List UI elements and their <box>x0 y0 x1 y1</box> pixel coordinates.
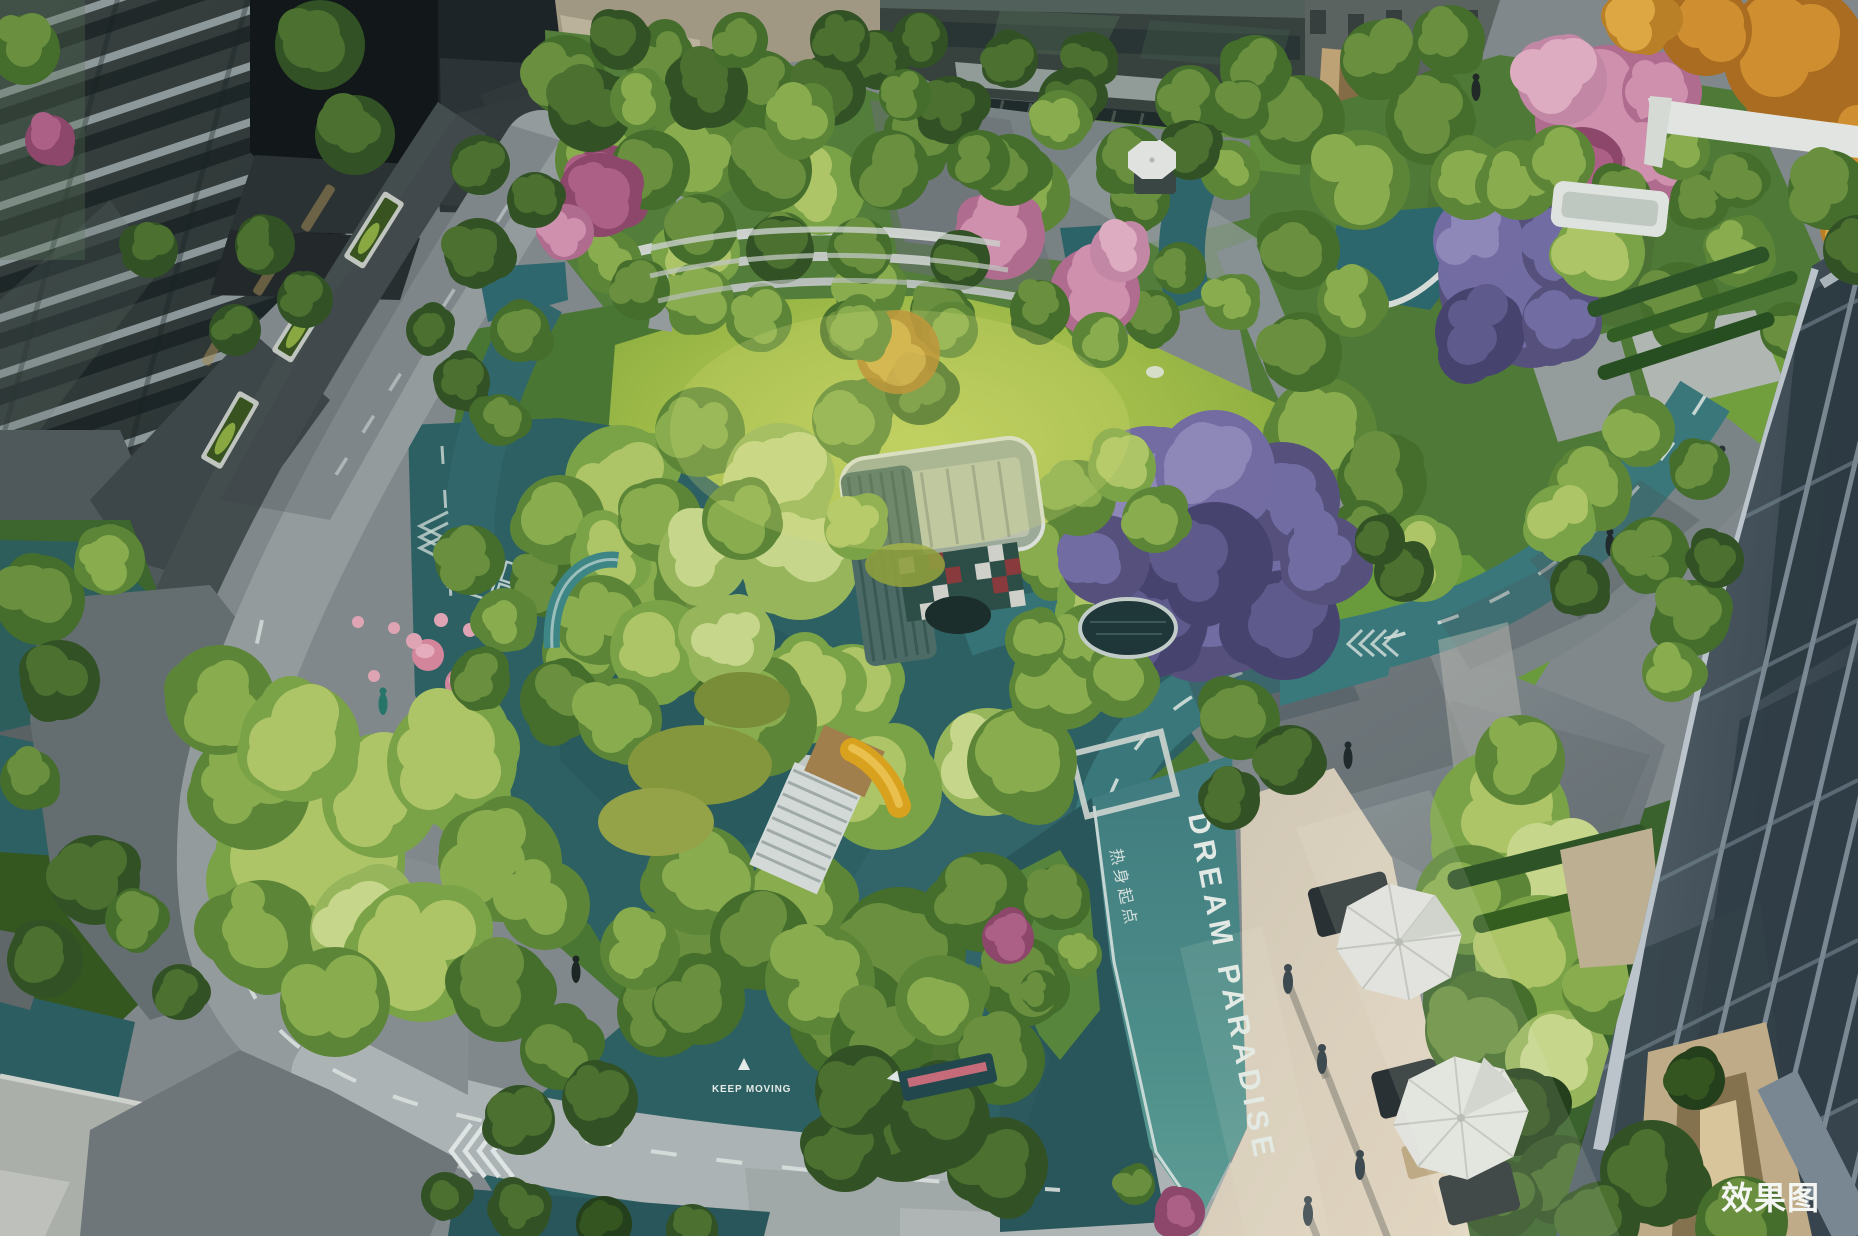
svg-text:效果图: 效果图 <box>1721 1180 1820 1216</box>
